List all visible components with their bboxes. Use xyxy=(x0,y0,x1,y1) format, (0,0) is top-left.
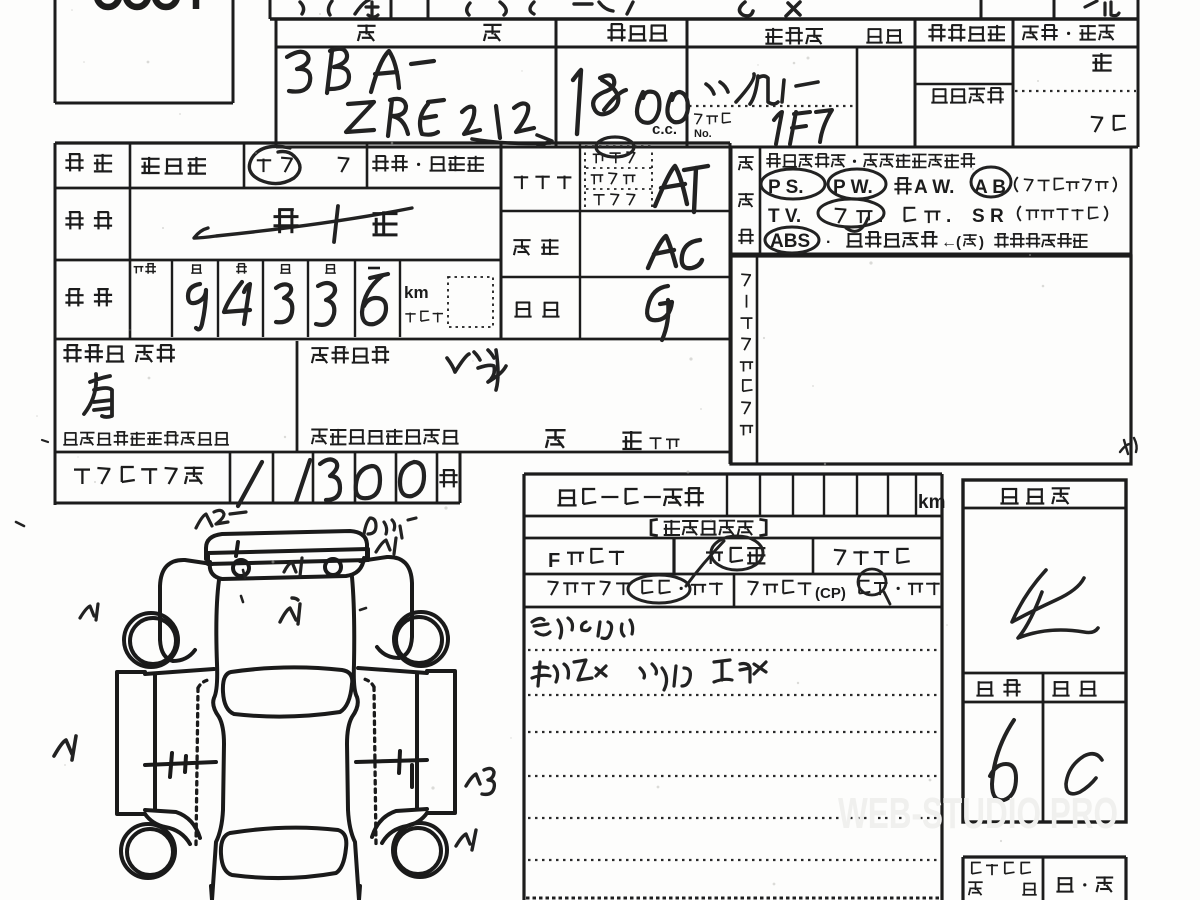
svg-text:F: F xyxy=(548,550,560,572)
svg-text:km: km xyxy=(918,492,945,513)
svg-text:.: . xyxy=(946,206,951,227)
svg-text:(: ( xyxy=(956,234,961,251)
svg-text:T V.: T V. xyxy=(768,206,801,227)
svg-text:No.: No. xyxy=(694,128,712,140)
svg-text:S R: S R xyxy=(972,206,1004,227)
svg-text:←: ← xyxy=(941,234,957,251)
svg-text:WEB-STUDIO PRO: WEB-STUDIO PRO xyxy=(838,789,1118,838)
svg-text:ABS: ABS xyxy=(770,231,810,252)
svg-text:A W.: A W. xyxy=(914,177,954,198)
svg-text:km: km xyxy=(404,283,429,302)
svg-text:(CP): (CP) xyxy=(815,585,846,602)
svg-text:): ) xyxy=(979,234,984,251)
svg-text:·: · xyxy=(826,234,831,251)
